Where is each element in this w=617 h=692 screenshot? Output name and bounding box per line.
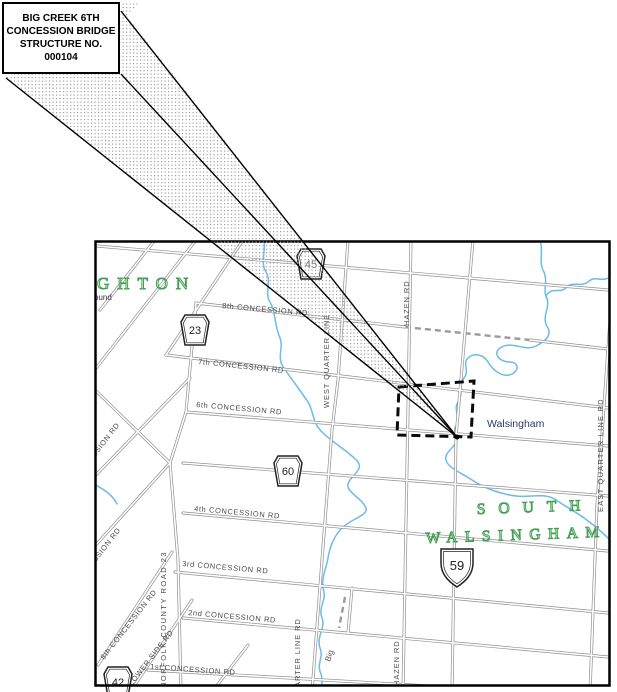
callout-line-4: 000104: [44, 51, 77, 64]
road-label-norfolk-county-road-23: NORFOLK COUNTY ROAD 23: [159, 551, 168, 688]
place-label-walsingham: Walsingham: [487, 418, 545, 430]
township-label-houghton: GHTON: [97, 274, 196, 293]
location-map-figure: GHTON SOUTH WALSINGHAM 8th CONCESSION RD…: [0, 0, 617, 692]
svg-text:42: 42: [112, 677, 124, 689]
callout-line-2: CONCESSION BRIDGE: [7, 25, 116, 38]
callout-line-3: STRUCTURE NO.: [20, 38, 102, 51]
county-road-23-shield: 23: [181, 315, 209, 345]
county-road-60-shield: 60: [274, 456, 302, 486]
callout-line-1: BIG CREEK 6TH: [22, 12, 99, 25]
structure-callout-box: BIG CREEK 6TH CONCESSION BRIDGE STRUCTUR…: [2, 2, 120, 74]
road-label-hazen-rd-north: HAZEN RD: [402, 280, 411, 326]
road-label-quarter-line-fragment: QUARTER LINE RD: [293, 618, 302, 692]
county-road-42-shield: 42: [104, 667, 132, 692]
map-canvas: GHTON SOUTH WALSINGHAM 8th CONCESSION RD…: [0, 0, 617, 692]
road-label-east-quarter-line: EAST QUARTER LINE RD: [596, 398, 605, 512]
leader-stipple-corner: [122, 2, 140, 22]
svg-text:23: 23: [189, 325, 201, 337]
road-label-hazen-rd-south: HAZEN RD: [392, 640, 401, 686]
svg-text:59: 59: [450, 558, 464, 573]
svg-text:60: 60: [282, 466, 294, 478]
bridge-location-dot: [455, 435, 460, 440]
